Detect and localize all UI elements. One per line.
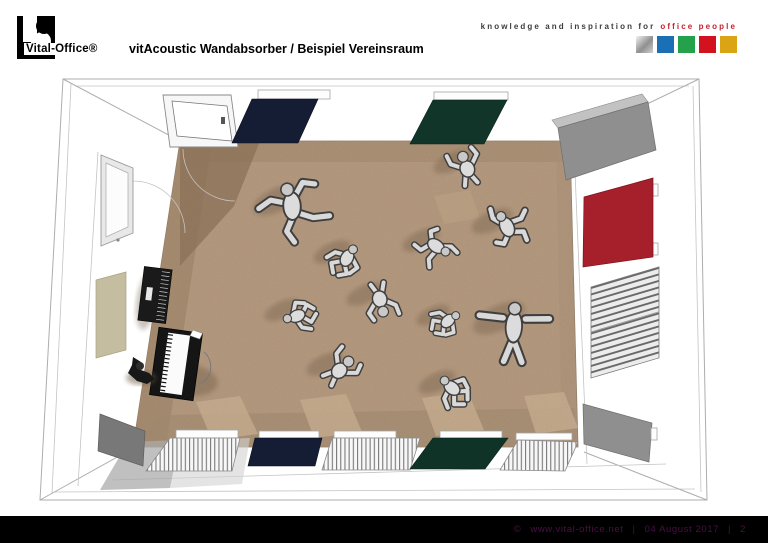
footer-separator: | <box>633 524 636 535</box>
panel-mount-frame <box>334 431 396 438</box>
page-title: vitAcoustic Wandabsorber / Beispiel Vere… <box>129 42 424 56</box>
panel-mount-frame <box>176 430 238 438</box>
panel-mount-frame <box>258 90 330 99</box>
whiteboard <box>101 155 133 246</box>
panel-mount-frame <box>434 92 508 100</box>
tagline: knowledge and inspiration foroffice peop… <box>481 22 737 31</box>
brand-square-blue <box>657 36 674 53</box>
copyright-symbol: © <box>514 524 522 535</box>
panel-mount-tab <box>653 184 658 196</box>
footer-bar: ©www.vital-office.net|04 August 2017|2 <box>0 516 768 543</box>
brand-square-gold <box>720 36 737 53</box>
logo-wordmark: Vital-Office® <box>24 43 101 55</box>
tagline-accent: office people <box>660 22 737 31</box>
absorber-panel-red <box>583 178 653 267</box>
panel-mount-tab <box>651 428 657 440</box>
brand-color-squares <box>636 36 737 53</box>
brand-square-silver <box>636 36 653 53</box>
brand-square-green <box>678 36 695 53</box>
footer-date: 04 August 2017 <box>645 524 719 535</box>
absorber-panel-beige <box>96 272 126 358</box>
absorber-panel-grey-topright <box>552 94 656 180</box>
absorber-panel-navy-bottom <box>248 438 322 466</box>
room-rendering <box>0 0 768 543</box>
slide: Vital-Office® vitAcoustic Wandabsorber /… <box>0 0 768 543</box>
footer-text: ©www.vital-office.net|04 August 2017|2 <box>505 516 746 543</box>
tagline-prefix: knowledge and inspiration for <box>481 22 656 31</box>
absorber-panel-green-top <box>410 100 507 144</box>
brand-square-red <box>699 36 716 53</box>
footer-separator: | <box>728 524 731 535</box>
slatted-blind-panel <box>591 267 659 378</box>
panel-mount-frame <box>516 433 572 440</box>
absorber-panel-navy-top <box>232 99 318 143</box>
absorber-panel-grey-bottomright <box>583 404 652 462</box>
vital-office-logo <box>17 16 55 64</box>
panel-mount-frame <box>259 431 319 438</box>
footer-page-number: 2 <box>740 524 746 535</box>
panel-mount-frame <box>440 431 502 438</box>
radiator-grill <box>322 438 420 470</box>
footer-url[interactable]: www.vital-office.net <box>530 524 623 535</box>
panel-mount-tab <box>653 243 658 255</box>
